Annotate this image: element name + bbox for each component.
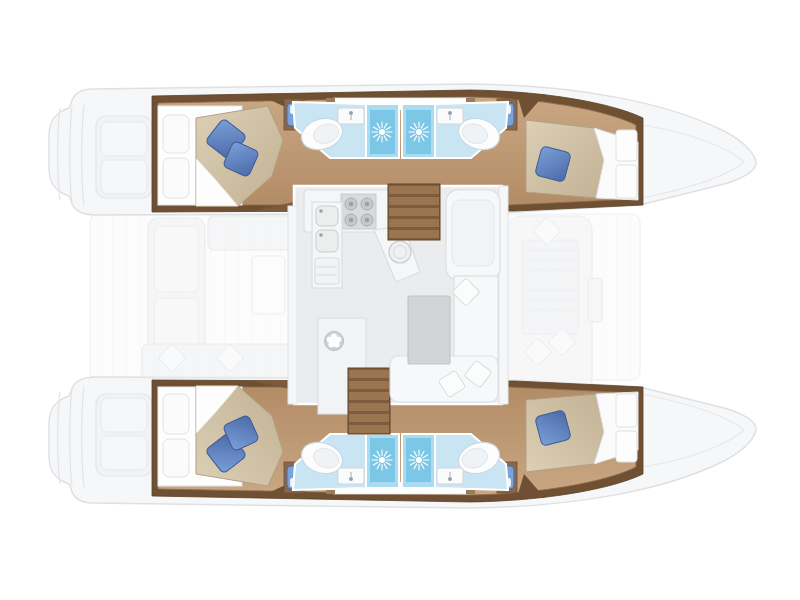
floor-plan-svg (0, 0, 800, 600)
saloon-left-wall (288, 206, 297, 404)
galley-drawers (315, 258, 339, 284)
galley-sink (316, 230, 338, 252)
saloon (288, 184, 508, 434)
cockpit-door (252, 256, 285, 314)
floor-plan (0, 0, 800, 600)
faucet-icon (319, 209, 323, 213)
fan-vent-icon (325, 332, 344, 351)
round-sink (389, 241, 411, 263)
cockpit-aft-bench (208, 216, 292, 250)
companionway-stairs-port (388, 184, 440, 240)
faucet-icon (319, 233, 323, 237)
galley-sink (316, 206, 338, 226)
dining-table (408, 296, 450, 364)
companionway-stairs-starboard (348, 368, 390, 434)
foredeck-lounge (508, 216, 602, 392)
